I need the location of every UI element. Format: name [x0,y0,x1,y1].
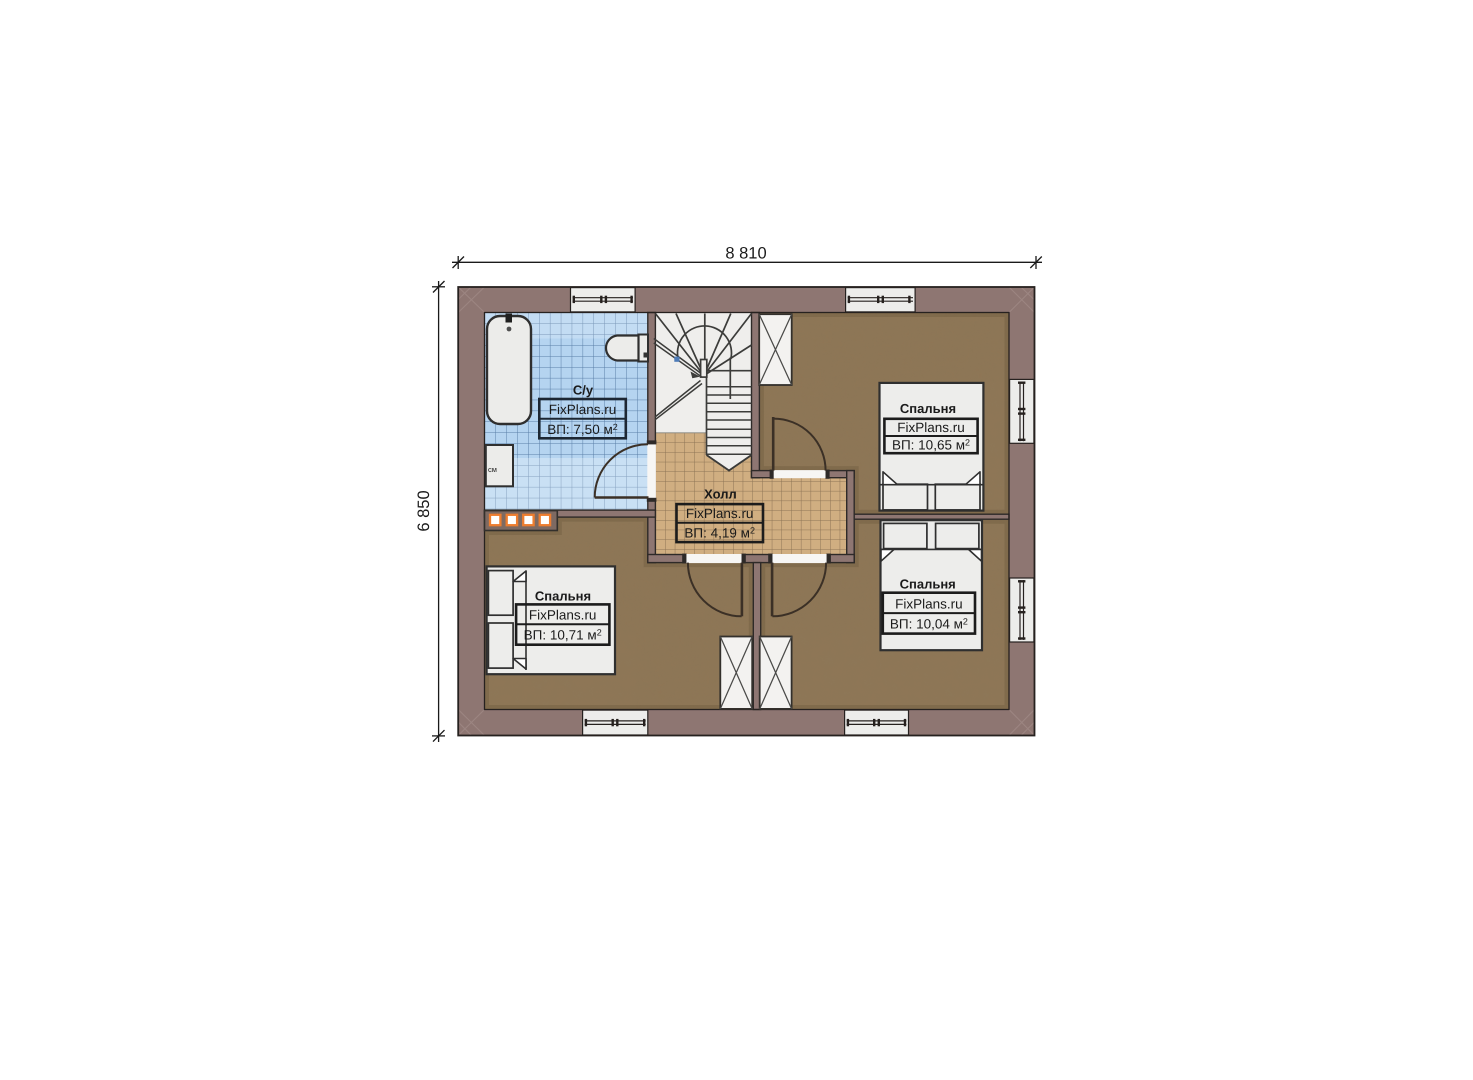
svg-text:FixPlans.ru: FixPlans.ru [895,596,963,611]
svg-text:FixPlans.ru: FixPlans.ru [686,506,754,521]
svg-text:FixPlans.ru: FixPlans.ru [549,402,617,417]
svg-text:ВП: 4,19 м2: ВП: 4,19 м2 [684,526,755,541]
svg-text:6 850: 6 850 [415,490,433,531]
svg-text:ВП: 10,71 м2: ВП: 10,71 м2 [524,628,602,643]
svg-text:8 810: 8 810 [725,245,766,263]
svg-text:см: см [488,465,497,474]
svg-text:FixPlans.ru: FixPlans.ru [897,420,965,435]
svg-text:Холл: Холл [704,487,737,502]
svg-text:Спальня: Спальня [900,577,956,592]
svg-text:Спальня: Спальня [535,589,591,604]
svg-text:ВП: 10,65 м2: ВП: 10,65 м2 [892,438,970,453]
svg-text:С/у: С/у [573,383,594,398]
svg-text:ВП: 10,04 м2: ВП: 10,04 м2 [890,617,968,632]
svg-text:Спальня: Спальня [900,401,956,416]
svg-text:FixPlans.ru: FixPlans.ru [529,608,597,623]
svg-text:ВП: 7,50 м2: ВП: 7,50 м2 [547,422,618,437]
